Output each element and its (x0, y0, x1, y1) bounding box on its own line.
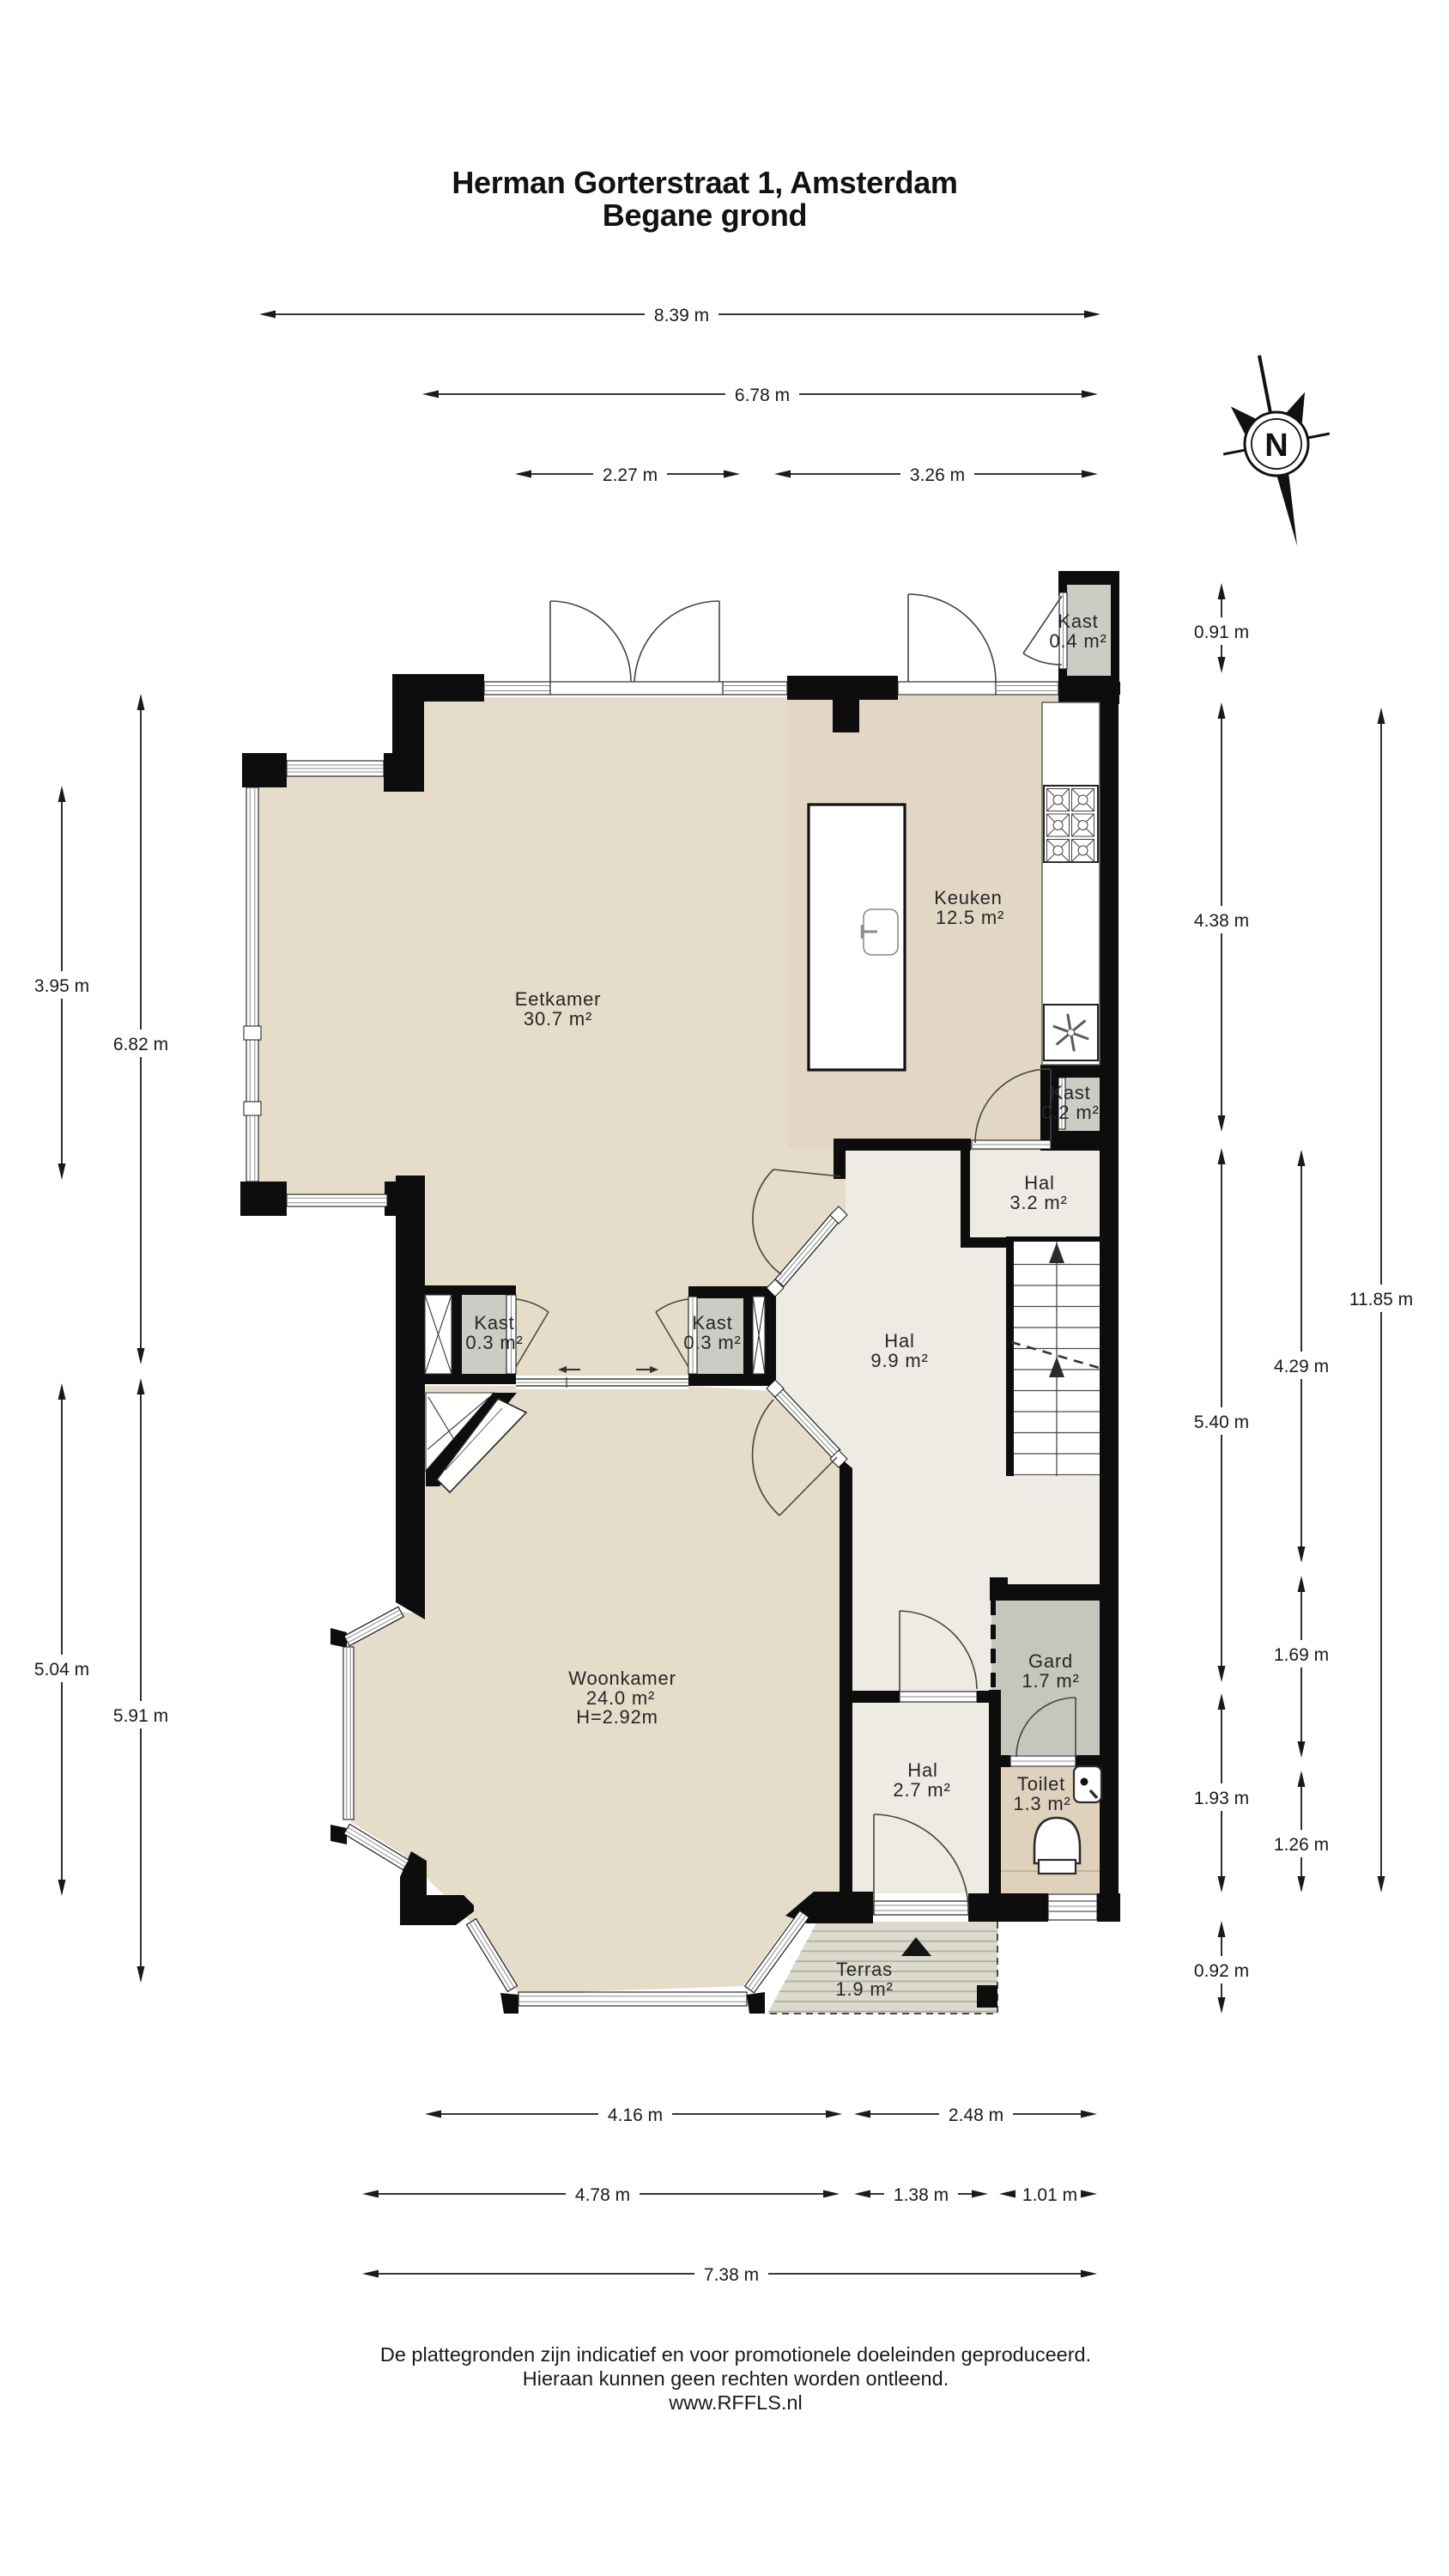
svg-text:30.7 m²: 30.7 m² (524, 1008, 592, 1030)
svg-text:1.26 m: 1.26 m (1274, 1835, 1329, 1855)
svg-text:2.27 m: 2.27 m (603, 465, 658, 485)
svg-text:0.91 m: 0.91 m (1194, 623, 1249, 642)
svg-text:5.04 m: 5.04 m (34, 1660, 89, 1680)
svg-text:5.40 m: 5.40 m (1194, 1413, 1249, 1432)
svg-text:9.9 m²: 9.9 m² (870, 1350, 928, 1371)
svg-text:Kast: Kast (692, 1312, 732, 1334)
svg-text:6.78 m: 6.78 m (735, 386, 790, 405)
svg-text:0.4 m²: 0.4 m² (1049, 630, 1106, 652)
svg-text:4.16 m: 4.16 m (608, 2105, 663, 2125)
svg-text:Herman Gorterstraat 1, Amsterd: Herman Gorterstraat 1, Amsterdam (452, 165, 957, 200)
svg-text:Gard: Gard (1028, 1650, 1073, 1672)
svg-text:Hieraan kunnen geen rechten wo: Hieraan kunnen geen rechten worden ontle… (523, 2367, 949, 2390)
svg-text:N: N (1264, 428, 1288, 464)
svg-text:4.29 m: 4.29 m (1274, 1357, 1329, 1376)
svg-text:1.3 m²: 1.3 m² (1013, 1793, 1070, 1814)
svg-text:11.85 m: 11.85 m (1349, 1290, 1413, 1309)
svg-text:6.82 m: 6.82 m (113, 1035, 168, 1054)
svg-text:1.69 m: 1.69 m (1274, 1645, 1329, 1665)
svg-text:Kast: Kast (474, 1312, 514, 1334)
svg-text:Terras: Terras (836, 1959, 893, 1980)
svg-text:0.3 m²: 0.3 m² (465, 1332, 523, 1353)
svg-text:4.78 m: 4.78 m (575, 2185, 630, 2205)
svg-text:12.5 m²: 12.5 m² (936, 907, 1004, 928)
svg-text:Keuken: Keuken (934, 887, 1002, 908)
svg-text:5.91 m: 5.91 m (113, 1706, 168, 1726)
svg-text:Eetkamer: Eetkamer (515, 988, 602, 1010)
svg-text:2.7 m²: 2.7 m² (893, 1779, 950, 1801)
svg-text:Toilet: Toilet (1017, 1773, 1065, 1795)
svg-text:1.93 m: 1.93 m (1194, 1789, 1249, 1808)
svg-text:www.RFFLS.nl: www.RFFLS.nl (668, 2391, 802, 2414)
svg-text:3.26 m: 3.26 m (910, 465, 965, 485)
svg-text:Kast: Kast (1050, 1082, 1090, 1103)
svg-text:Hal: Hal (907, 1759, 937, 1781)
svg-text:1.7 m²: 1.7 m² (1022, 1670, 1079, 1692)
svg-text:Kast: Kast (1058, 611, 1098, 632)
svg-text:3.95 m: 3.95 m (34, 976, 89, 996)
svg-text:1.9 m²: 1.9 m² (835, 1978, 893, 2000)
svg-text:0.3 m²: 0.3 m² (683, 1332, 741, 1353)
svg-text:Hal: Hal (1024, 1172, 1054, 1194)
svg-text:Hal: Hal (884, 1330, 914, 1352)
svg-text:De plattegronden zijn indicati: De plattegronden zijn indicatief en voor… (380, 2343, 1091, 2366)
svg-text:1.38 m: 1.38 m (894, 2185, 949, 2205)
svg-text:3.2 m²: 3.2 m² (1009, 1192, 1067, 1213)
svg-text:4.38 m: 4.38 m (1194, 911, 1249, 931)
svg-text:2.48 m: 2.48 m (949, 2105, 1003, 2125)
svg-text:7.38 m: 7.38 m (704, 2265, 759, 2285)
svg-text:0.2 m²: 0.2 m² (1041, 1102, 1099, 1123)
svg-text:0.92 m: 0.92 m (1194, 1961, 1249, 1981)
svg-text:H=2.92m: H=2.92m (576, 1706, 658, 1728)
svg-text:1.01 m: 1.01 m (1022, 2185, 1077, 2205)
svg-text:Begane grond: Begane grond (603, 197, 807, 233)
svg-text:Woonkamer: Woonkamer (568, 1668, 676, 1689)
svg-text:8.39 m: 8.39 m (654, 306, 709, 325)
